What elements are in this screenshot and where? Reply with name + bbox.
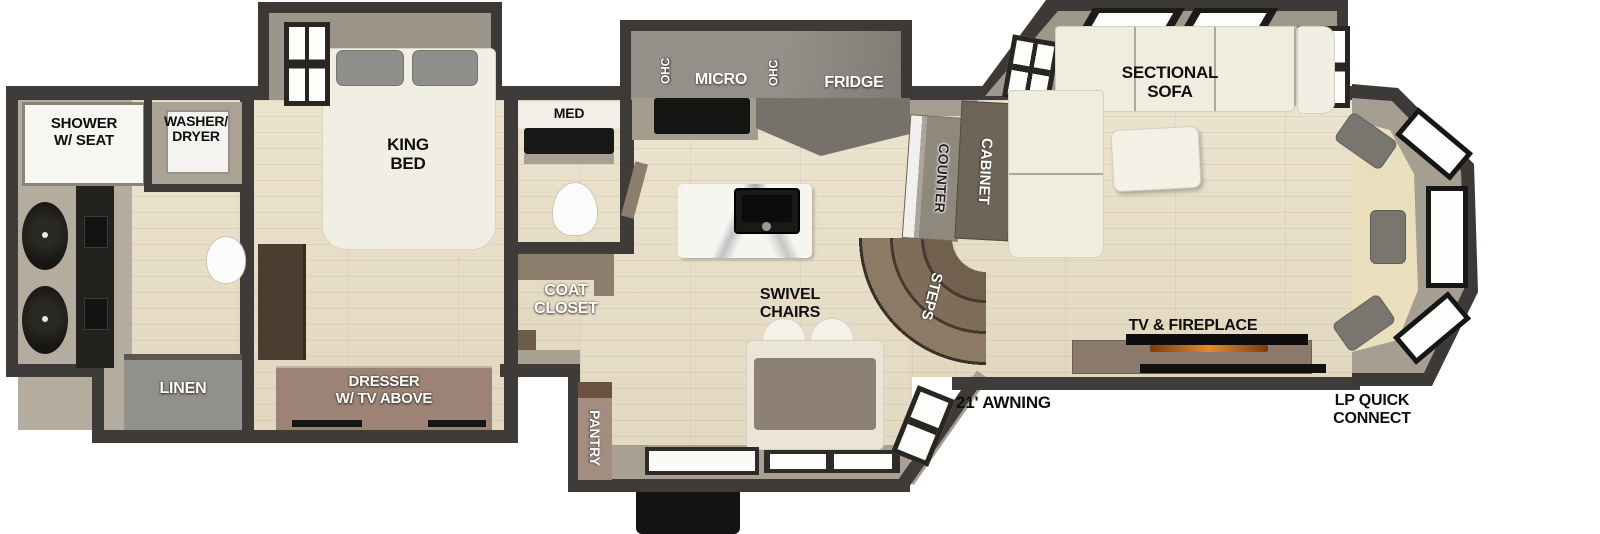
ohc-right-label: OHC (764, 50, 784, 96)
cap-cushion-middle (1370, 210, 1406, 264)
faucet (84, 216, 108, 248)
wall-entry-bottom (568, 479, 910, 492)
wall-living-bottom (952, 377, 1360, 390)
faucet (84, 298, 108, 330)
wall-midbath-bottom (504, 242, 634, 254)
king-bed-label: KING BED (338, 136, 478, 173)
shower-label: SHOWER W/ SEAT (24, 116, 144, 149)
sink-basin (742, 195, 792, 222)
bedroom-window (284, 22, 330, 106)
wall-rear (6, 86, 18, 377)
coat-closet-wall-face (518, 350, 580, 364)
bedroom-wardrobe (258, 244, 306, 360)
ohc-left-label: OHC (656, 46, 676, 96)
med-cabinet (524, 128, 614, 154)
window-pane (770, 454, 826, 469)
cooktop (654, 98, 750, 134)
med-label: MED (518, 106, 620, 121)
washer-dryer-label: WASHER/ DRYER (150, 114, 242, 145)
floorplan-scene: COUNTER CABINET SHOWER W/ SEAT WASHER/ D… (0, 0, 1600, 534)
swivel-chairs-label: SWIVEL CHAIRS (728, 286, 852, 321)
tv-console-trim (1140, 364, 1326, 373)
entry-door (645, 447, 759, 475)
ottoman (1110, 126, 1201, 193)
awning-label: 21' AWNING (956, 394, 1116, 413)
med-vanity-shelf (524, 154, 614, 164)
sink-drain (42, 232, 48, 238)
pantry-label: PANTRY (578, 398, 612, 478)
lp-quick-connect-label: LP QUICK CONNECT (1316, 392, 1428, 427)
coat-closet-shelf (518, 254, 614, 280)
sectional-sofa-chaise (1008, 90, 1104, 258)
wall-bedroom-right (504, 98, 518, 443)
cabinet-label: CABINET (955, 102, 1014, 241)
bath-vanity (76, 186, 114, 368)
cap-window-middle (1426, 186, 1468, 288)
wall-bottom-left (92, 430, 518, 443)
rear-toilet (206, 236, 246, 284)
pantry-cabinet-top (578, 382, 612, 398)
fridge-label: FRIDGE (814, 74, 894, 92)
fireplace (1150, 345, 1268, 352)
tv (1126, 334, 1308, 345)
pillow (412, 50, 478, 86)
island-sink (734, 188, 800, 234)
coat-closet-label: COAT CLOSET (510, 282, 622, 317)
mid-toilet (552, 182, 598, 236)
window-pane (834, 454, 892, 469)
linen-label: LINEN (124, 380, 242, 398)
sectional-sofa-label: SECTIONAL SOFA (1078, 64, 1262, 101)
wall-washer-bottom (144, 184, 242, 192)
tv-fireplace-label: TV & FIREPLACE (1098, 317, 1288, 335)
sink-drain (42, 316, 48, 322)
dresser-tv (292, 420, 362, 427)
dresser-label: DRESSER W/ TV ABOVE (286, 374, 482, 407)
pillow (336, 50, 404, 86)
sectional-sofa-arm (1297, 26, 1335, 114)
dresser-tv (428, 420, 486, 427)
exterior-entry-steps (636, 489, 740, 534)
island-faucet (762, 222, 771, 231)
micro-label: MICRO (684, 71, 758, 89)
entry-side-window (764, 450, 900, 473)
cabinet: CABINET (954, 101, 1015, 242)
